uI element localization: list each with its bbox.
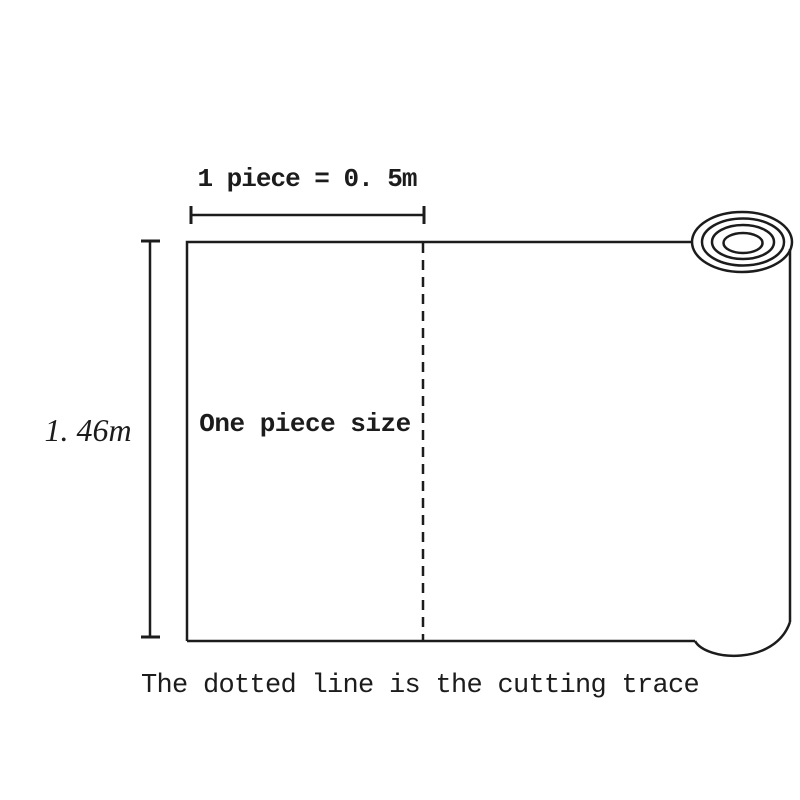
sheet-left-top-edge (187, 242, 693, 641)
roll-ring-outer (692, 212, 792, 272)
sheet-bottom-curl (695, 622, 790, 656)
cutting-trace-caption: The dotted line is the cutting trace (40, 673, 800, 700)
roll-ring-inner (724, 233, 763, 253)
left-dimension-line (141, 241, 160, 637)
top-dimension-line (191, 206, 424, 224)
roll-spiral-icon (692, 212, 792, 272)
top-dimension-label: 1 piece = 0. 5m (177, 166, 437, 192)
product-dimension-diagram: 1 piece = 0. 5m 1. 46m One piece size Th… (0, 0, 800, 800)
one-piece-size-label: One piece size (190, 411, 420, 437)
left-dimension-label: 1. 46m (36, 414, 140, 446)
